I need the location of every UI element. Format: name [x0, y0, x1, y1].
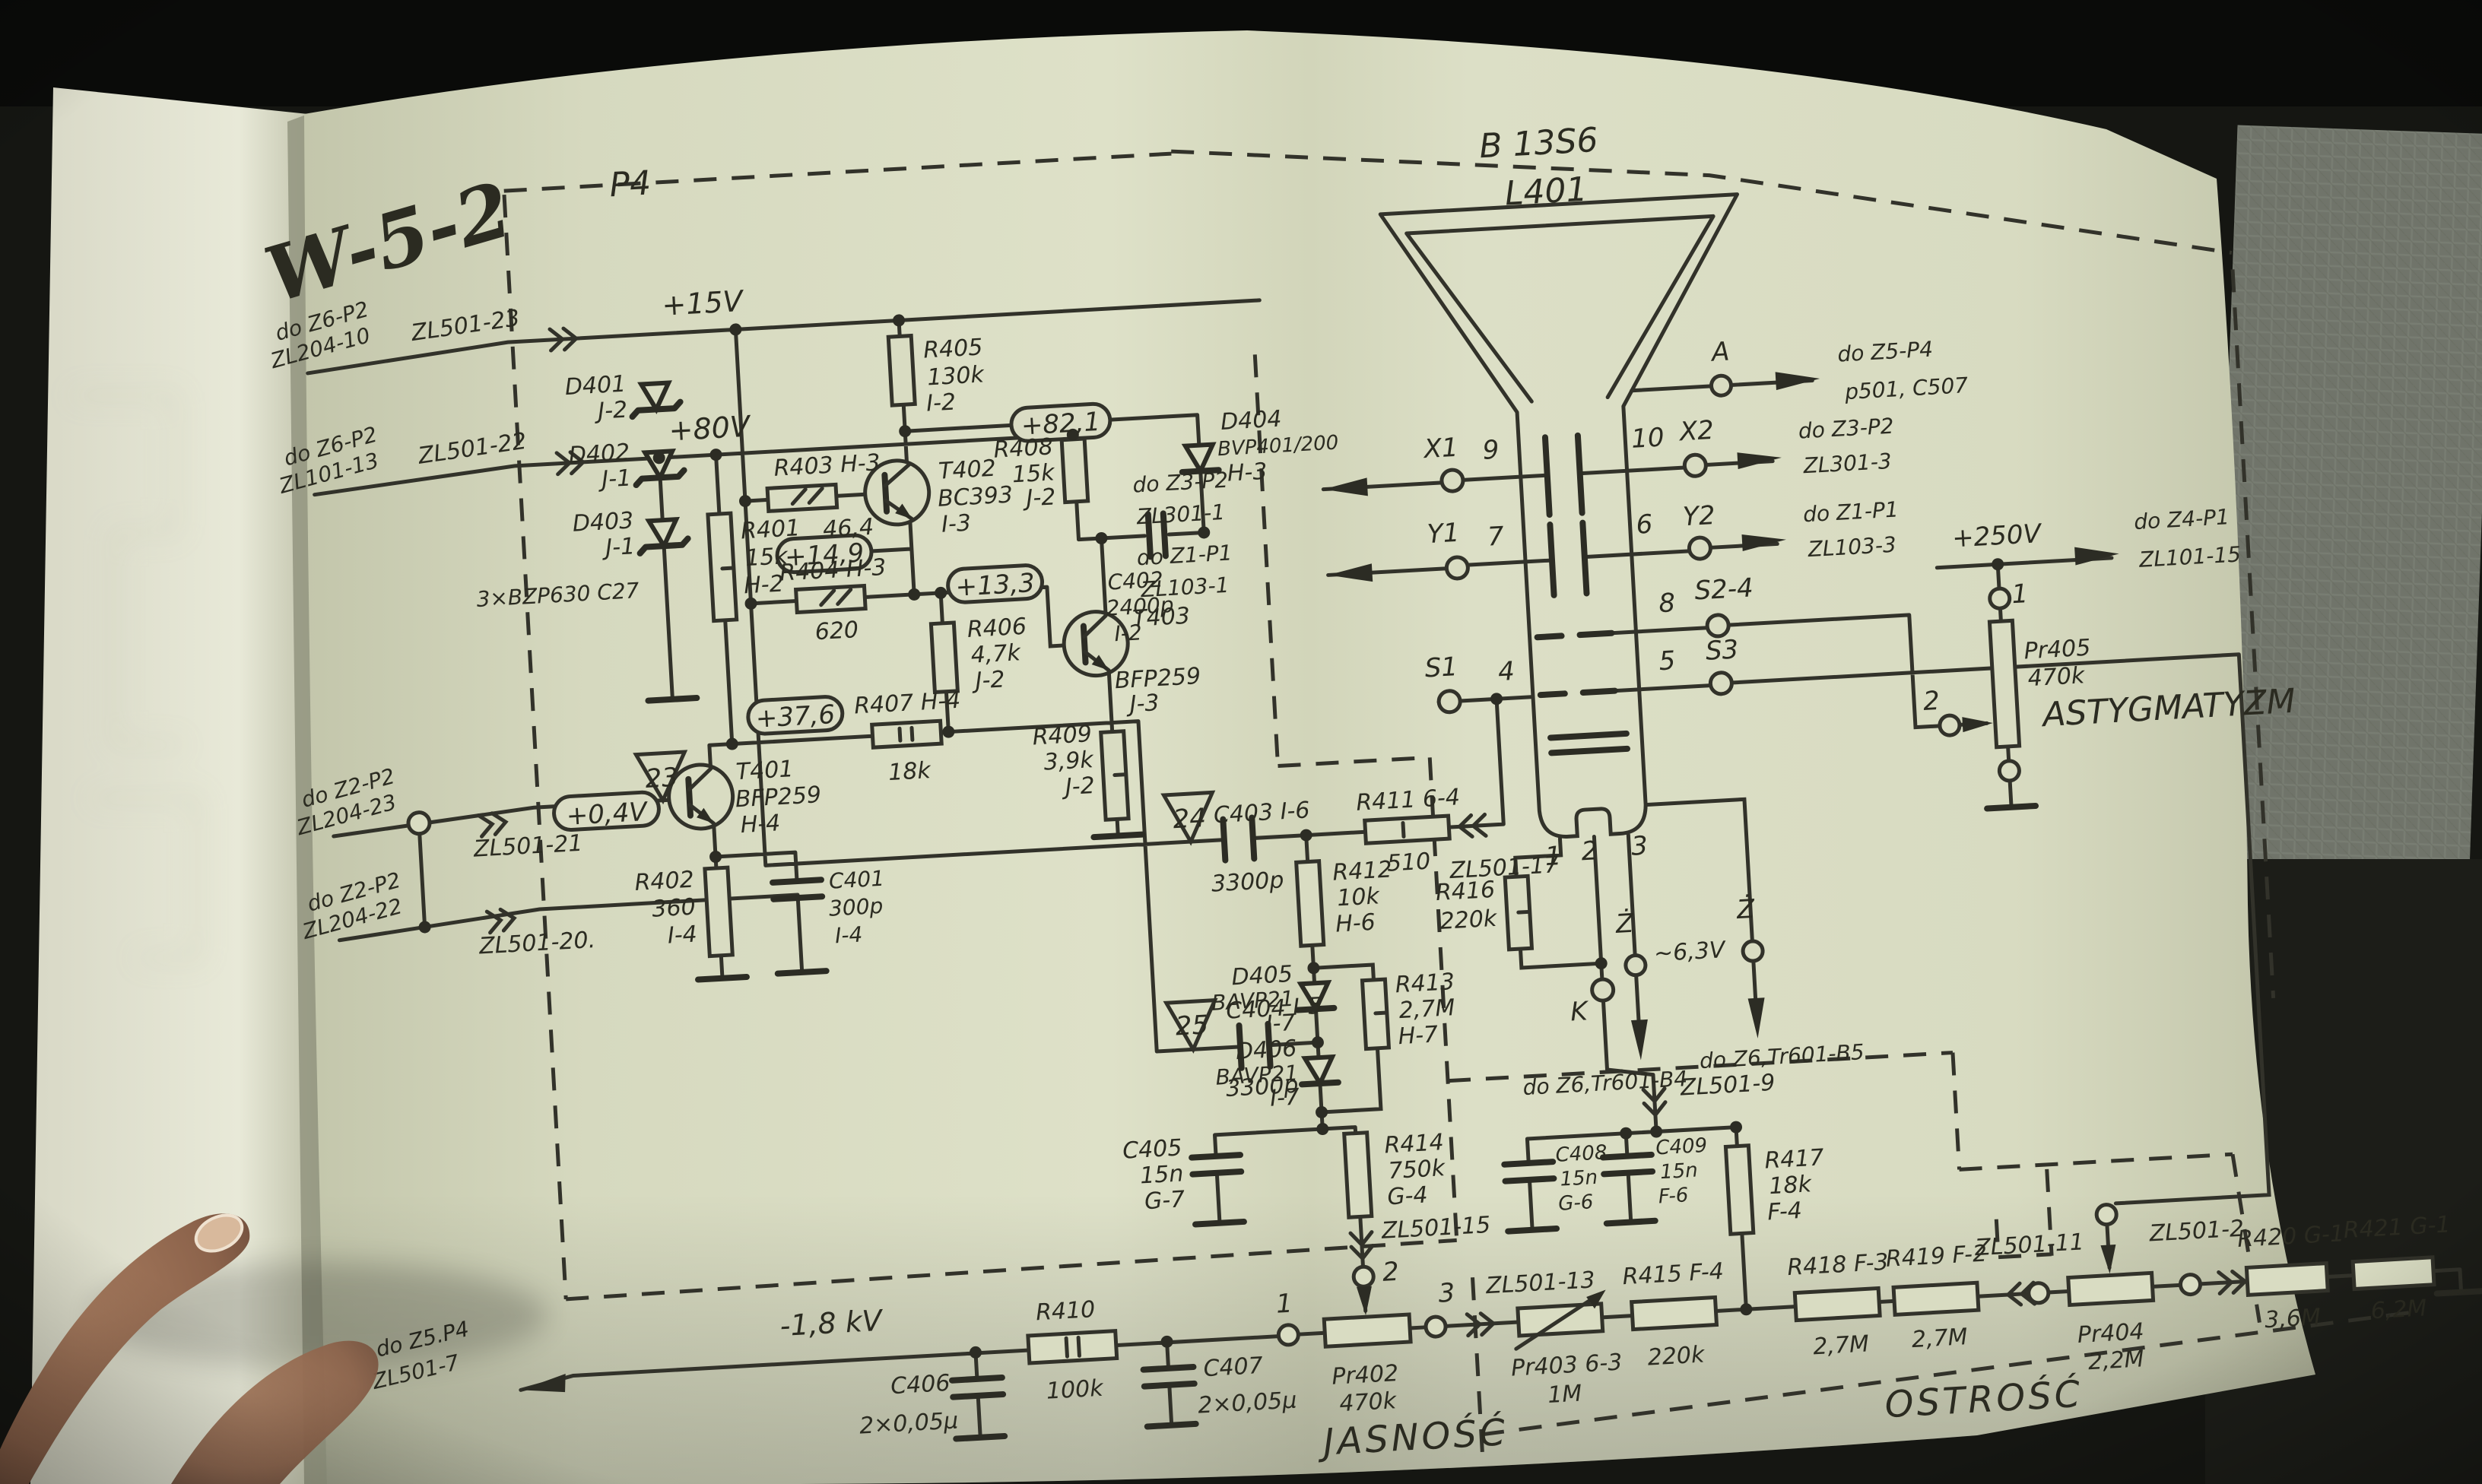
vignette — [0, 0, 2482, 1484]
scene: W-5-2 P4 do Z6-P2 ZL204-10 do Z6-P2 ZL10… — [0, 0, 2482, 1484]
photo-of-schematic-book: W-5-2 P4 do Z6-P2 ZL204-10 do Z6-P2 ZL10… — [0, 0, 2482, 1484]
